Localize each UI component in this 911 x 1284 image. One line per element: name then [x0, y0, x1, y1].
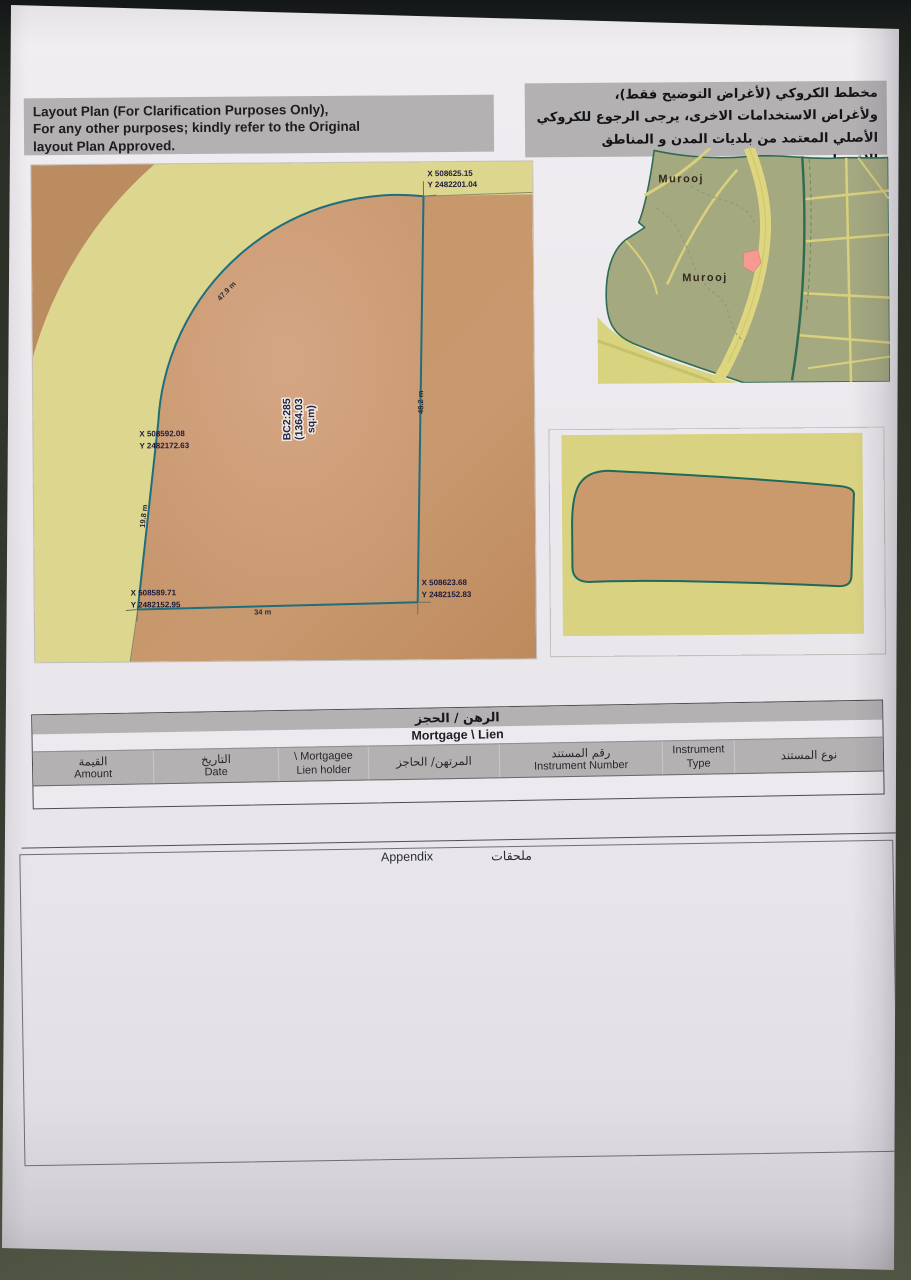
coordinate-label-bottom-right-x: X 508623.68	[422, 578, 468, 587]
column-header-instrument-type-ar-text: نوع المستند	[781, 748, 837, 763]
block-shape	[572, 469, 855, 588]
appendix-box: Appendix ملحقات	[19, 840, 898, 1166]
column-header-mortgagee-line1: \ Mortgagee	[294, 750, 353, 764]
dimension-label-right: 48.2 m	[416, 390, 425, 414]
column-header-date: التاريخ Date	[153, 748, 279, 783]
overview-map: Murooj Murooj	[596, 147, 890, 384]
arabic-disclaimer-line1: مخطط الكروكي (لأغراض التوضيح فقط)،	[534, 83, 878, 108]
column-header-lien-holder-ar: المرتهن/ الحاجز	[368, 744, 500, 779]
murooj-label-center: Murooj	[682, 272, 728, 284]
dimension-label-bottom: 34 m	[254, 607, 272, 617]
coordinate-label-mid-left-y: Y 2482172.63	[139, 441, 189, 450]
layout-plan-drawing: X 508625.15 Y 2482201.04 X 508592.08 Y 2…	[31, 161, 536, 662]
column-header-mortgagee-line2: Lien holder	[296, 763, 351, 777]
arabic-disclaimer-line2: ولأغراض الاستخدامات الاخرى، يرجى الرجوع …	[534, 105, 878, 130]
column-header-date-en: Date	[204, 766, 227, 780]
coordinate-label-bottom-left-y: Y 2482152.95	[131, 600, 181, 609]
appendix-label-arabic: ملحقات	[491, 848, 532, 864]
arabic-disclaimer-box: مخطط الكروكي (لأغراض التوضيح فقط)، ولأغر…	[525, 81, 888, 158]
document-content: Layout Plan (For Clarification Purposes …	[0, 0, 911, 1284]
appendix-label-english: Appendix	[381, 849, 433, 865]
column-header-mortgagee: \ Mortgagee Lien holder	[278, 747, 369, 782]
english-disclaimer-box: Layout Plan (For Clarification Purposes …	[24, 95, 494, 156]
column-header-instrument-type-line1: Instrument	[672, 743, 724, 757]
coordinate-label-top-right-y: Y 2482201.04	[427, 180, 477, 189]
column-header-date-ar: التاريخ	[201, 752, 231, 767]
coordinate-label-top-right-x: X 508625.15	[427, 169, 473, 178]
paper: Layout Plan (For Clarification Purposes …	[0, 0, 911, 1280]
column-header-instrument-type: Instrument Type	[662, 740, 735, 774]
murooj-label-top: Murooj	[658, 173, 704, 185]
coordinate-label-bottom-left-x: X 508589.71	[131, 588, 177, 597]
parcel-area-label-line1: BC2:285	[281, 398, 293, 440]
column-header-instrument-number-ar: رقم المستند	[551, 745, 610, 760]
column-header-instrument-type-ar: نوع المستند	[734, 738, 884, 774]
column-header-amount-en: Amount	[74, 768, 112, 782]
photo-background: Layout Plan (For Clarification Purposes …	[0, 0, 911, 1280]
english-disclaimer-line3: layout Plan Approved.	[33, 134, 485, 155]
coordinate-label-mid-left-x: X 508592.08	[139, 429, 185, 438]
column-header-instrument-number: رقم المستند Instrument Number	[499, 741, 663, 777]
column-header-amount: القيمة Amount	[33, 750, 154, 785]
block-map	[549, 428, 885, 657]
coordinate-label-bottom-right-y: Y 2482152.83	[422, 590, 472, 599]
column-header-lien-holder-ar-text: المرتهن/ الحاجز	[396, 754, 472, 769]
mortgage-lien-table: الرهن / الحجز Mortgage \ Lien القيمة Amo…	[31, 700, 885, 810]
column-header-amount-ar: القيمة	[78, 754, 107, 769]
parcel-area-label-line3: sq.m)	[305, 405, 317, 433]
column-header-instrument-type-line2: Type	[687, 757, 711, 771]
column-header-instrument-number-en: Instrument Number	[534, 759, 628, 774]
parcel-area-label-line2: (1364.03	[293, 398, 305, 440]
